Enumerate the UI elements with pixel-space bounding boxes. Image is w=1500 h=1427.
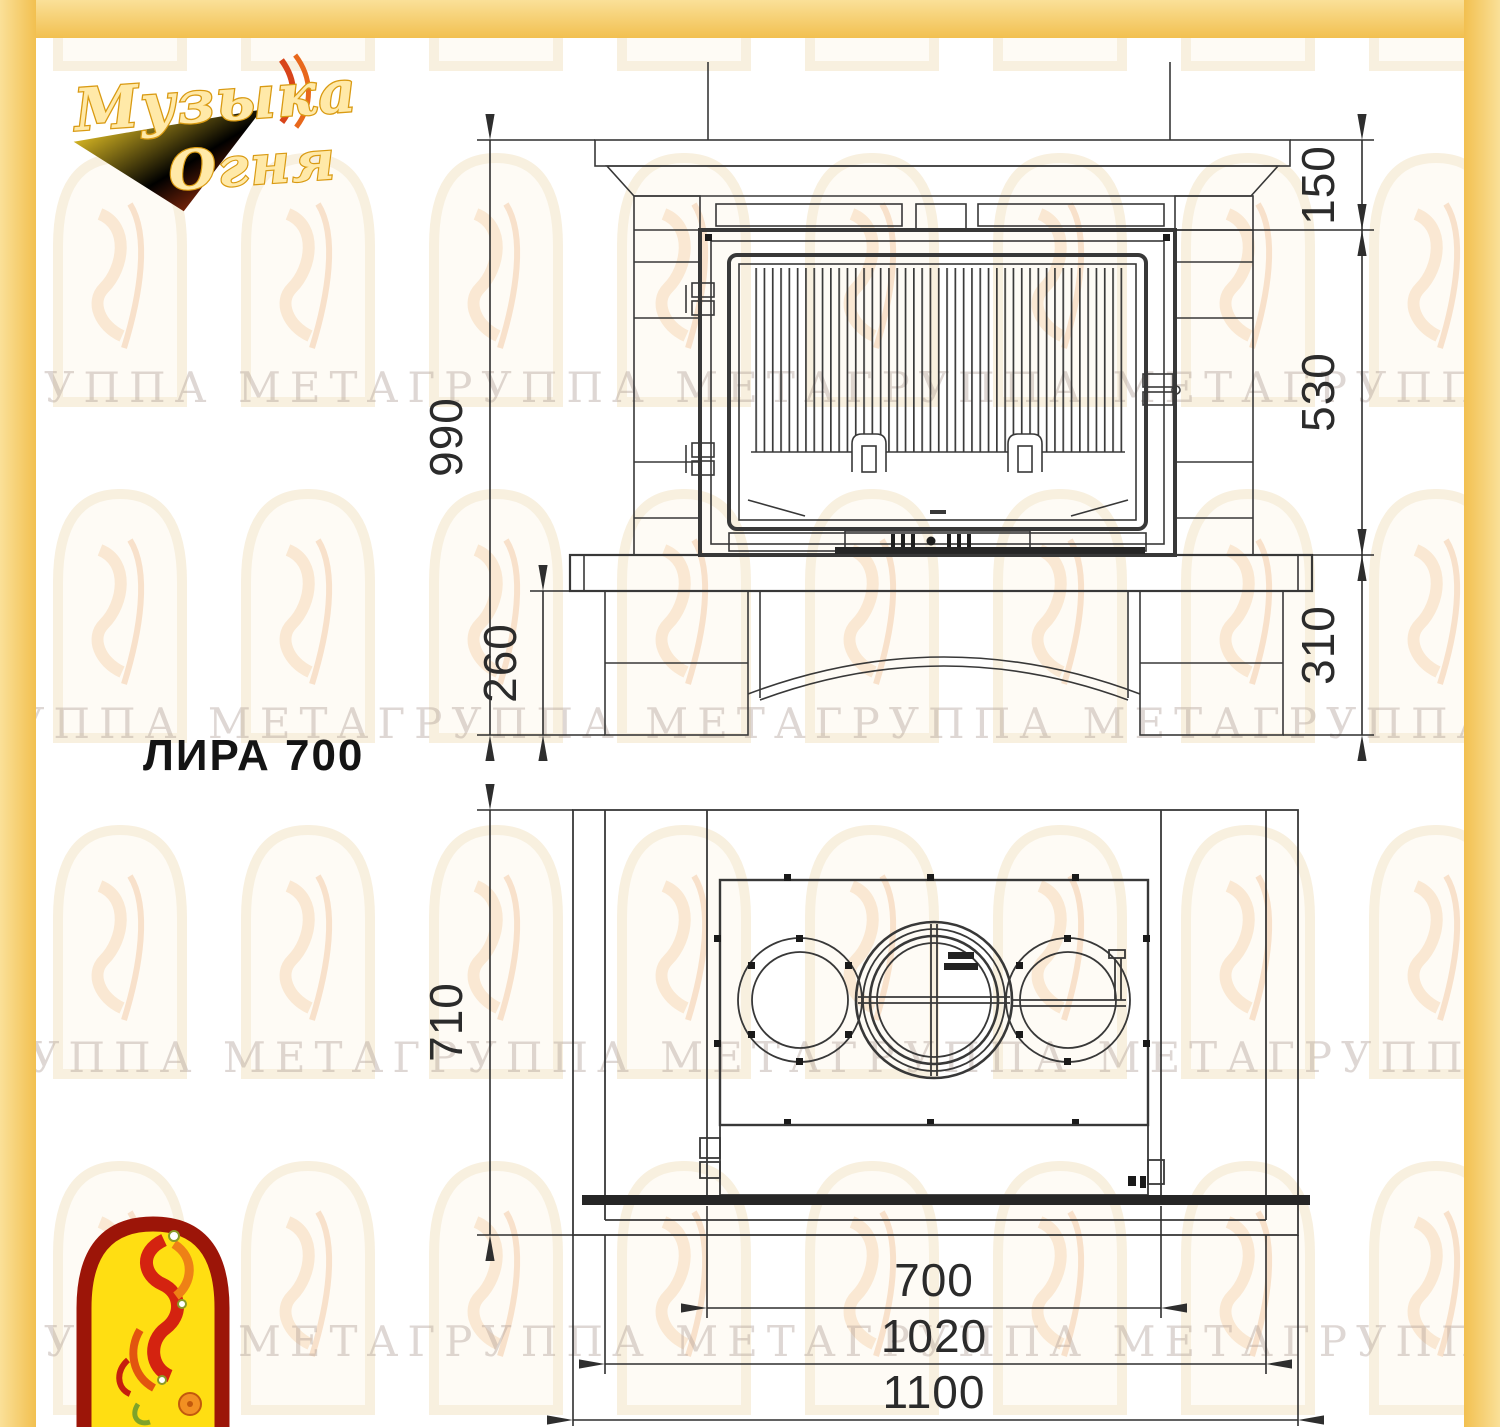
dim-total-height-label: 990 bbox=[420, 397, 472, 477]
dim-total-width-label: 1100 bbox=[883, 1366, 986, 1418]
model-title: ЛИРА 700 bbox=[143, 731, 364, 780]
dim-insert-height-label: 530 bbox=[1292, 352, 1344, 432]
brand-word-2: Огня bbox=[167, 128, 339, 204]
dim-insert-width-label: 700 bbox=[894, 1254, 974, 1306]
grate-foot-left bbox=[852, 434, 886, 472]
border-top bbox=[0, 0, 1500, 38]
door-sill-bar bbox=[835, 547, 1145, 555]
dim-depth-label: 710 bbox=[420, 982, 472, 1062]
door-grill bbox=[751, 268, 1125, 452]
meta-logo bbox=[84, 1224, 222, 1427]
grate-foot-right bbox=[1008, 434, 1042, 472]
dim-hearth-floor-label: 310 bbox=[1292, 605, 1344, 685]
dim-inner-width-label: 1020 bbox=[881, 1310, 987, 1362]
border-left bbox=[0, 0, 36, 1427]
plan-front-edge-bold bbox=[582, 1195, 1310, 1205]
dim-base-height-label: 260 bbox=[474, 623, 526, 703]
border-right bbox=[1464, 0, 1500, 1427]
watermark-text-row: ГРУППА МЕТАГРУППА МЕТАГРУППА МЕТАГРУППА … bbox=[0, 363, 1500, 412]
technical-drawing: ГРУППА МЕТАГРУППА МЕТАГРУППА МЕТАГРУППА … bbox=[0, 0, 1500, 1427]
dim-mantel-label: 150 bbox=[1292, 145, 1344, 225]
watermark-text-row: ГРУППА МЕТАГРУППА МЕТАГРУППА МЕТАГРУППА … bbox=[0, 1033, 1500, 1082]
drawing-sheet: ГРУППА МЕТАГРУППА МЕТАГРУППА МЕТАГРУППА … bbox=[0, 0, 1500, 1427]
